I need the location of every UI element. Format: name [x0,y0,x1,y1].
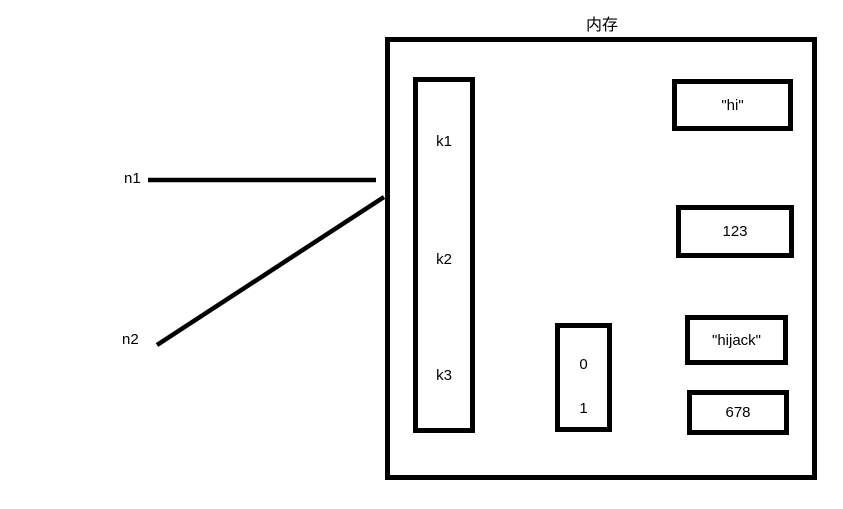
value-label-678: 678 [725,404,750,421]
pointer-label-n2: n2 [122,331,139,348]
key-label-k2: k2 [418,251,470,268]
index-box: 0 1 [555,323,612,432]
key-label-k3: k3 [418,367,470,384]
memory-diagram-canvas: 内存 n1 n2 k1 k2 k3 0 1 "hi" 123 "hijack" … [0,0,843,509]
value-box-hi: "hi" [672,79,793,131]
value-label-hi: "hi" [721,97,743,114]
index-value-1: 1 [560,400,607,417]
value-box-123: 123 [676,205,794,258]
value-label-123: 123 [722,223,747,240]
value-label-hijack: "hijack" [712,332,761,349]
n2-pointer-line [157,197,384,345]
key-label-k1: k1 [418,133,470,150]
index-value-0: 0 [560,356,607,373]
value-box-hijack: "hijack" [685,315,788,365]
value-box-678: 678 [687,390,789,435]
memory-title: 内存 [586,11,618,35]
key-column-box: k1 k2 k3 [413,77,475,433]
pointer-label-n1: n1 [124,170,141,187]
